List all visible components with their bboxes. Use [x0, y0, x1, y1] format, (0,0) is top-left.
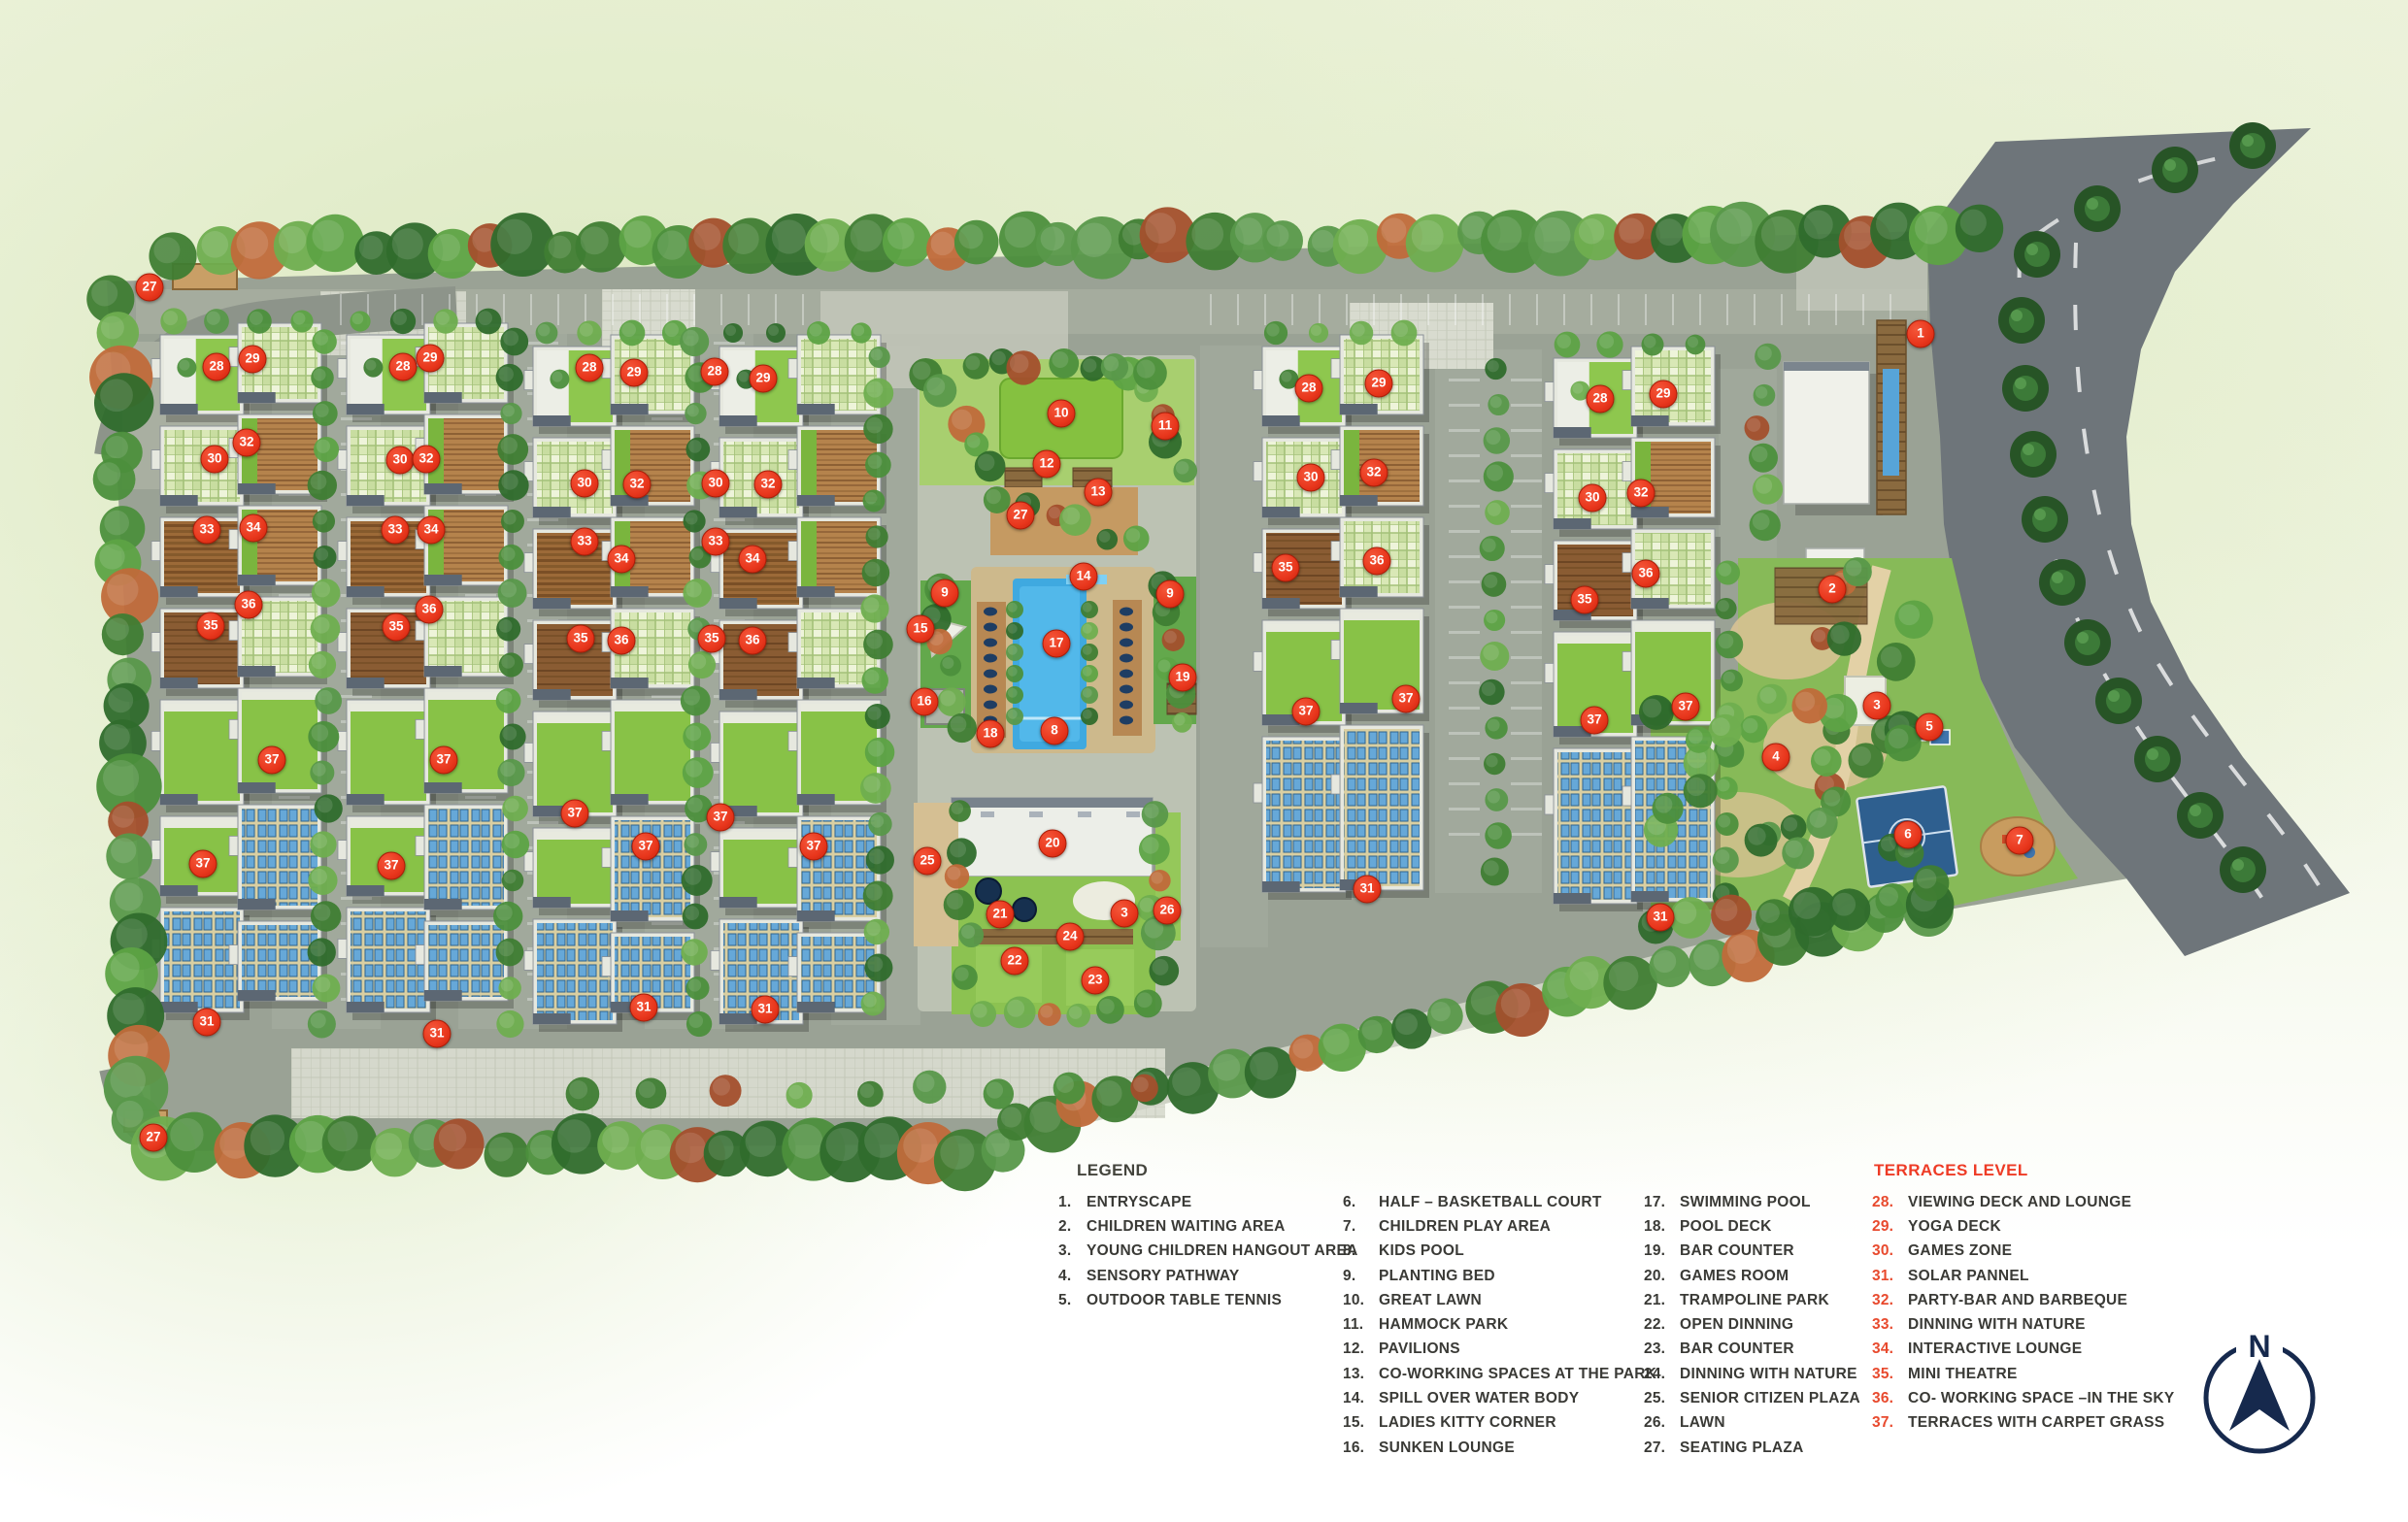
legend-item-number: 24. — [1644, 1366, 1673, 1383]
legend-item-label: DINNING WITH NATURE — [1908, 1316, 2086, 1334]
legend-item-label: POOL DECK — [1680, 1218, 1772, 1236]
legend-item-label: SUNKEN LOUNGE — [1379, 1439, 1515, 1457]
legend-item-36: 36.CO- WORKING SPACE –IN THE SKY — [1872, 1386, 2175, 1410]
legend-item-26: 26.LAWN — [1644, 1411, 1860, 1436]
legend-item-number: 23. — [1644, 1340, 1673, 1358]
legend-item-37: 37.TERRACES WITH CARPET GRASS — [1872, 1411, 2175, 1436]
legend-item-18: 18.POOL DECK — [1644, 1214, 1860, 1239]
legend: LEGEND TERRACES LEVEL 1.ENTRYSCAPE2.CHIL… — [0, 0, 2408, 1522]
legend-item-11: 11.HAMMOCK PARK — [1343, 1312, 1656, 1337]
legend-title: LEGEND — [1077, 1161, 1148, 1180]
legend-item-number: 3. — [1058, 1242, 1080, 1260]
legend-item-17: 17.SWIMMING POOL — [1644, 1190, 1860, 1214]
legend-item-20: 20.GAMES ROOM — [1644, 1264, 1860, 1288]
legend-column-2: 6.HALF – BASKETBALL COURT7.CHILDREN PLAY… — [1343, 1190, 1656, 1460]
legend-item-30: 30.GAMES ZONE — [1872, 1240, 2175, 1264]
legend-column-4: 28.VIEWING DECK AND LOUNGE29.YOGA DECK30… — [1872, 1190, 2175, 1436]
legend-item-label: SWIMMING POOL — [1680, 1194, 1811, 1211]
legend-item-label: GAMES ZONE — [1908, 1242, 2012, 1260]
legend-item-number: 30. — [1872, 1242, 1901, 1260]
legend-item-number: 6. — [1343, 1194, 1372, 1211]
legend-item-8: 8.KIDS POOL — [1343, 1240, 1656, 1264]
legend-item-label: HALF – BASKETBALL COURT — [1379, 1194, 1602, 1211]
legend-item-2: 2.CHILDREN WAITING AREA — [1058, 1214, 1358, 1239]
legend-item-28: 28.VIEWING DECK AND LOUNGE — [1872, 1190, 2175, 1214]
legend-item-label: BAR COUNTER — [1680, 1340, 1794, 1358]
legend-item-label: CHILDREN WAITING AREA — [1087, 1218, 1286, 1236]
legend-item-label: TERRACES WITH CARPET GRASS — [1908, 1414, 2164, 1432]
legend-column-1: 1.ENTRYSCAPE2.CHILDREN WAITING AREA3.YOU… — [1058, 1190, 1358, 1312]
legend-item-label: OUTDOOR TABLE TENNIS — [1087, 1292, 1282, 1309]
legend-item-number: 22. — [1644, 1316, 1673, 1334]
legend-item-label: SPILL OVER WATER BODY — [1379, 1390, 1579, 1407]
legend-item-1: 1.ENTRYSCAPE — [1058, 1190, 1358, 1214]
legend-item-9: 9.PLANTING BED — [1343, 1264, 1656, 1288]
legend-item-33: 33.DINNING WITH NATURE — [1872, 1312, 2175, 1337]
legend-item-number: 34. — [1872, 1340, 1901, 1358]
legend-item-label: MINI THEATRE — [1908, 1366, 2018, 1383]
legend-item-35: 35.MINI THEATRE — [1872, 1362, 2175, 1386]
legend-item-label: CO- WORKING SPACE –IN THE SKY — [1908, 1390, 2175, 1407]
legend-item-label: VIEWING DECK AND LOUNGE — [1908, 1194, 2131, 1211]
legend-item-label: SENIOR CITIZEN PLAZA — [1680, 1390, 1860, 1407]
legend-item-22: 22.OPEN DINNING — [1644, 1312, 1860, 1337]
legend-item-label: PARTY-BAR AND BARBEQUE — [1908, 1292, 2127, 1309]
legend-item-number: 35. — [1872, 1366, 1901, 1383]
legend-item-label: SENSORY PATHWAY — [1087, 1268, 1240, 1285]
legend-item-number: 19. — [1644, 1242, 1673, 1260]
legend-item-label: CHILDREN PLAY AREA — [1379, 1218, 1551, 1236]
legend-item-13: 13.CO-WORKING SPACES AT THE PARK — [1343, 1362, 1656, 1386]
legend-item-number: 33. — [1872, 1316, 1901, 1334]
legend-item-number: 7. — [1343, 1218, 1372, 1236]
legend-item-label: INTERACTIVE LOUNGE — [1908, 1340, 2082, 1358]
legend-item-number: 25. — [1644, 1390, 1673, 1407]
legend-item-29: 29.YOGA DECK — [1872, 1214, 2175, 1239]
legend-item-label: BAR COUNTER — [1680, 1242, 1794, 1260]
legend-item-label: CO-WORKING SPACES AT THE PARK — [1379, 1366, 1656, 1383]
legend-item-number: 13. — [1343, 1366, 1372, 1383]
legend-item-number: 15. — [1343, 1414, 1372, 1432]
legend-item-label: TRAMPOLINE PARK — [1680, 1292, 1829, 1309]
legend-item-label: GREAT LAWN — [1379, 1292, 1482, 1309]
legend-item-number: 10. — [1343, 1292, 1372, 1309]
legend-item-number: 12. — [1343, 1340, 1372, 1358]
legend-item-number: 1. — [1058, 1194, 1080, 1211]
legend-item-label: LAWN — [1680, 1414, 1725, 1432]
legend-item-15: 15.LADIES KITTY CORNER — [1343, 1411, 1656, 1436]
legend-item-16: 16.SUNKEN LOUNGE — [1343, 1436, 1656, 1460]
legend-item-number: 8. — [1343, 1242, 1372, 1260]
legend-item-number: 28. — [1872, 1194, 1901, 1211]
legend-item-number: 9. — [1343, 1268, 1372, 1285]
legend-item-label: LADIES KITTY CORNER — [1379, 1414, 1556, 1432]
legend-item-number: 4. — [1058, 1268, 1080, 1285]
legend-item-14: 14.SPILL OVER WATER BODY — [1343, 1386, 1656, 1410]
legend-item-number: 29. — [1872, 1218, 1901, 1236]
legend-item-6: 6.HALF – BASKETBALL COURT — [1343, 1190, 1656, 1214]
terraces-level-title: TERRACES LEVEL — [1874, 1161, 2028, 1180]
legend-item-number: 37. — [1872, 1414, 1901, 1432]
legend-item-number: 16. — [1343, 1439, 1372, 1457]
legend-item-number: 21. — [1644, 1292, 1673, 1309]
legend-item-5: 5.OUTDOOR TABLE TENNIS — [1058, 1288, 1358, 1312]
legend-item-label: KIDS POOL — [1379, 1242, 1464, 1260]
legend-item-31: 31.SOLAR PANNEL — [1872, 1264, 2175, 1288]
legend-item-32: 32.PARTY-BAR AND BARBEQUE — [1872, 1288, 2175, 1312]
legend-item-number: 18. — [1644, 1218, 1673, 1236]
legend-item-label: HAMMOCK PARK — [1379, 1316, 1508, 1334]
legend-item-number: 14. — [1343, 1390, 1372, 1407]
legend-item-number: 17. — [1644, 1194, 1673, 1211]
legend-item-number: 32. — [1872, 1292, 1901, 1309]
legend-item-24: 24.DINNING WITH NATURE — [1644, 1362, 1860, 1386]
legend-item-number: 27. — [1644, 1439, 1673, 1457]
legend-item-number: 11. — [1343, 1316, 1372, 1334]
legend-item-label: ENTRYSCAPE — [1087, 1194, 1191, 1211]
legend-item-4: 4.SENSORY PATHWAY — [1058, 1264, 1358, 1288]
legend-item-number: 2. — [1058, 1218, 1080, 1236]
legend-item-label: GAMES ROOM — [1680, 1268, 1789, 1285]
legend-item-19: 19.BAR COUNTER — [1644, 1240, 1860, 1264]
legend-item-label: YOGA DECK — [1908, 1218, 2001, 1236]
legend-item-3: 3.YOUNG CHILDREN HANGOUT AREA — [1058, 1240, 1358, 1264]
legend-item-label: SEATING PLAZA — [1680, 1439, 1804, 1457]
legend-item-label: SOLAR PANNEL — [1908, 1268, 2029, 1285]
legend-item-label: PAVILIONS — [1379, 1340, 1460, 1358]
legend-item-34: 34.INTERACTIVE LOUNGE — [1872, 1338, 2175, 1362]
legend-item-label: YOUNG CHILDREN HANGOUT AREA — [1087, 1242, 1358, 1260]
legend-item-25: 25.SENIOR CITIZEN PLAZA — [1644, 1386, 1860, 1410]
legend-item-7: 7.CHILDREN PLAY AREA — [1343, 1214, 1656, 1239]
legend-item-23: 23.BAR COUNTER — [1644, 1338, 1860, 1362]
legend-item-number: 31. — [1872, 1268, 1901, 1285]
legend-item-number: 26. — [1644, 1414, 1673, 1432]
legend-item-10: 10.GREAT LAWN — [1343, 1288, 1656, 1312]
legend-item-label: OPEN DINNING — [1680, 1316, 1793, 1334]
legend-item-21: 21.TRAMPOLINE PARK — [1644, 1288, 1860, 1312]
legend-item-12: 12.PAVILIONS — [1343, 1338, 1656, 1362]
legend-item-label: PLANTING BED — [1379, 1268, 1495, 1285]
legend-item-label: DINNING WITH NATURE — [1680, 1366, 1857, 1383]
legend-item-number: 20. — [1644, 1268, 1673, 1285]
legend-item-number: 36. — [1872, 1390, 1901, 1407]
legend-column-3: 17.SWIMMING POOL18.POOL DECK19.BAR COUNT… — [1644, 1190, 1860, 1460]
legend-item-number: 5. — [1058, 1292, 1080, 1309]
legend-item-27: 27.SEATING PLAZA — [1644, 1436, 1860, 1460]
